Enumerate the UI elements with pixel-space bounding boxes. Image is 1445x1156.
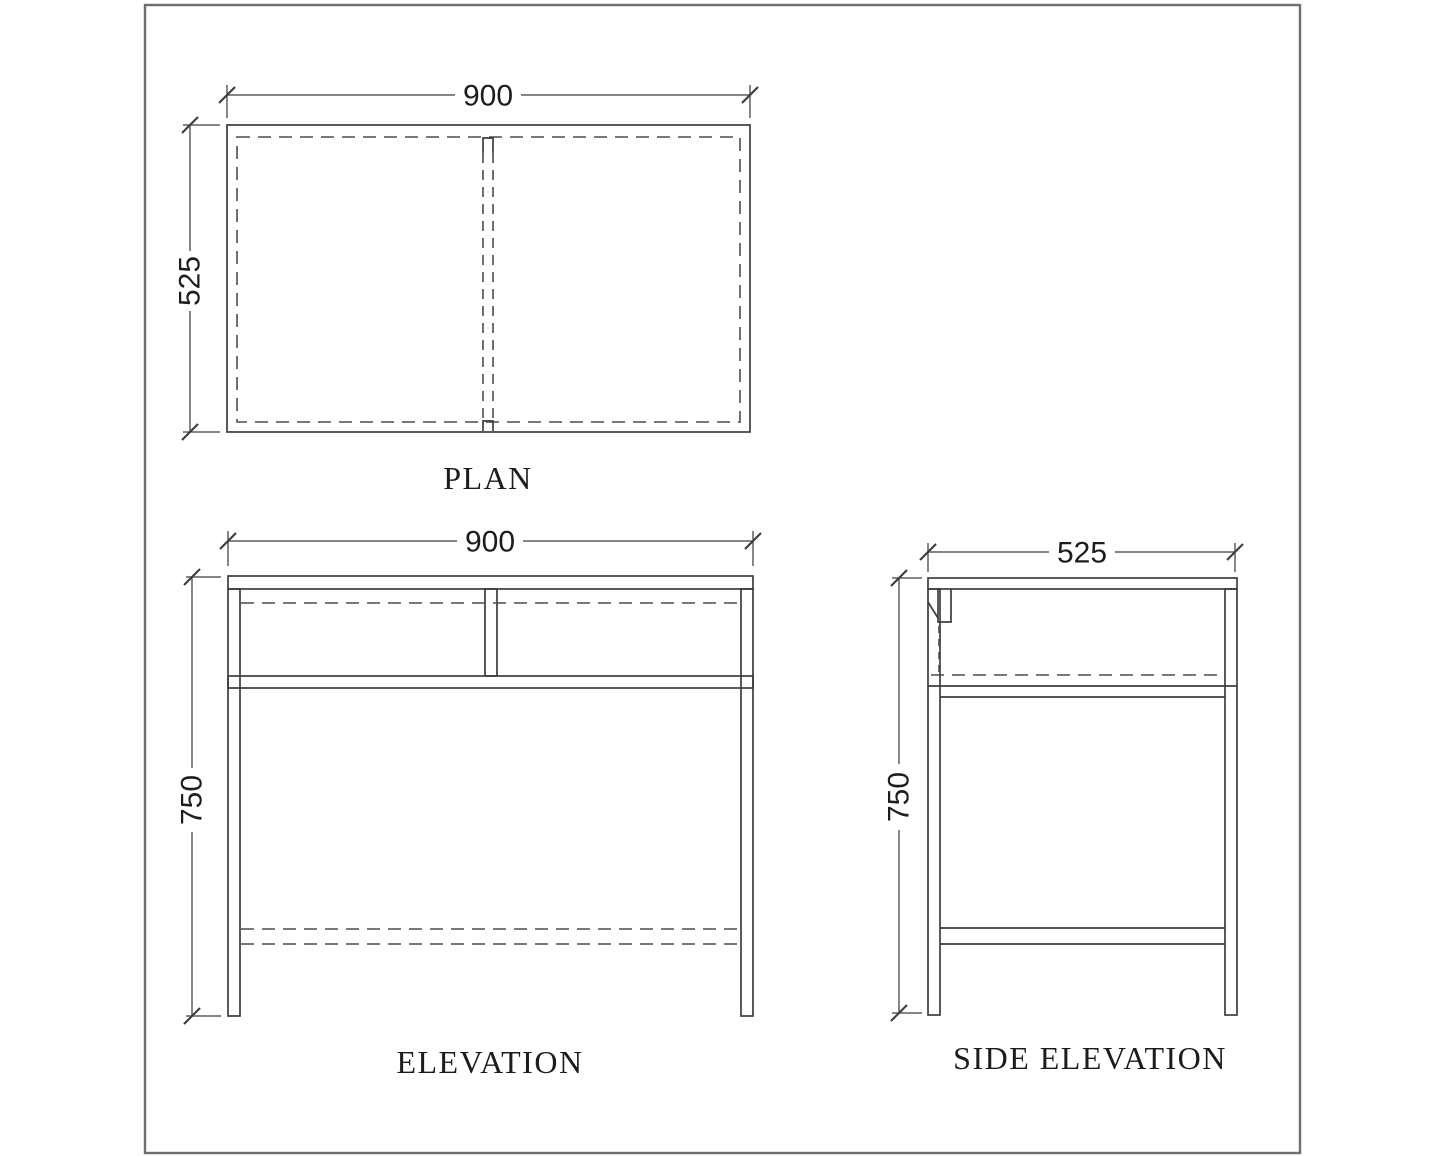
elevation-width-dimension: 900 xyxy=(220,526,761,567)
plan-view: 900 525 PLAN xyxy=(174,80,759,497)
side-bracket-notch-line xyxy=(928,602,938,618)
drawing-sheet: 900 525 PLAN 900 xyxy=(0,0,1445,1156)
side-desktop xyxy=(928,578,1237,589)
plan-hidden-frame-outline xyxy=(237,137,740,422)
side-elevation-view: 525 750 SIDE ELEVATION xyxy=(883,537,1244,1077)
elevation-center-divider xyxy=(485,589,497,676)
plan-width-value: 900 xyxy=(463,80,513,113)
elevation-desktop xyxy=(228,576,753,589)
elevation-height-dimension: 750 xyxy=(176,569,222,1024)
plan-top-outline xyxy=(227,125,750,432)
plan-depth-value: 525 xyxy=(174,256,207,306)
side-elevation-view-label: SIDE ELEVATION xyxy=(953,1040,1227,1076)
side-depth-value: 525 xyxy=(1057,537,1107,570)
elevation-width-value: 900 xyxy=(465,526,515,559)
side-height-dimension: 750 xyxy=(883,570,923,1021)
plan-depth-dimension: 525 xyxy=(174,117,221,440)
elevation-right-leg xyxy=(741,589,753,1016)
side-depth-dimension: 525 xyxy=(920,537,1243,573)
elevation-shelf-rail xyxy=(228,676,753,688)
elevation-height-value: 750 xyxy=(176,775,209,825)
technical-drawing: 900 525 PLAN 900 xyxy=(0,0,1445,1156)
elevation-view: 900 750 ELEVATION xyxy=(176,526,762,1081)
side-height-value: 750 xyxy=(883,772,916,822)
elevation-view-label: ELEVATION xyxy=(396,1044,583,1080)
side-back-leg xyxy=(1225,589,1237,1015)
plan-divider-top-cap xyxy=(483,138,493,153)
elevation-left-leg xyxy=(228,589,240,1016)
sheet-border xyxy=(145,5,1300,1153)
plan-view-label: PLAN xyxy=(443,460,533,496)
plan-width-dimension: 900 xyxy=(219,80,758,119)
